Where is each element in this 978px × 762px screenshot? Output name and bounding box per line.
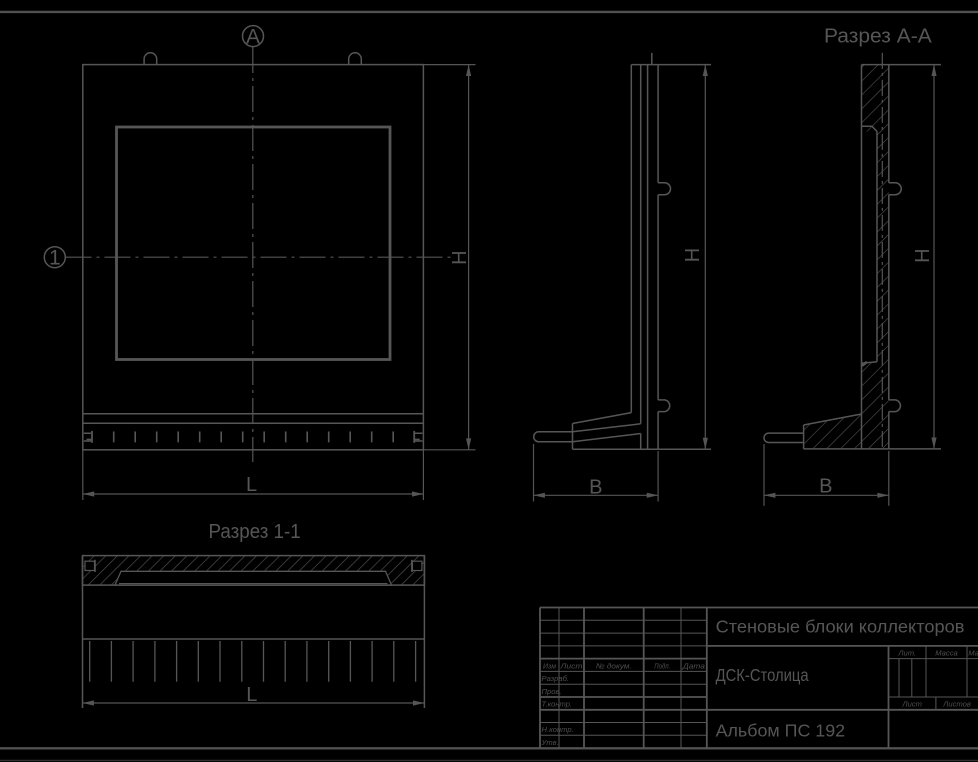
svg-text:Лист: Лист bbox=[559, 661, 582, 670]
svg-text:Разрез А-А: Разрез А-А bbox=[824, 25, 932, 47]
svg-text:Лит.: Лит. bbox=[897, 649, 916, 658]
svg-text:H: H bbox=[912, 248, 934, 262]
svg-text:Разрез 1-1: Разрез 1-1 bbox=[209, 521, 301, 543]
svg-text:А: А bbox=[246, 26, 260, 49]
svg-text:L: L bbox=[246, 684, 257, 706]
svg-text:Лист: Лист bbox=[901, 700, 922, 709]
svg-text:Разраб.: Разраб. bbox=[542, 674, 569, 683]
svg-text:Утв.: Утв. bbox=[541, 738, 559, 747]
svg-text:ДСК-Столица: ДСК-Столица bbox=[716, 665, 809, 685]
svg-text:№ докум.: № докум. bbox=[596, 661, 632, 670]
svg-text:H: H bbox=[682, 248, 704, 262]
svg-text:Стеновые блоки коллекторов: Стеновые блоки коллекторов bbox=[716, 617, 965, 637]
svg-text:Пров.: Пров. bbox=[542, 687, 562, 696]
svg-text:Подп.: Подп. bbox=[654, 661, 670, 670]
svg-text:Т.контр.: Т.контр. bbox=[542, 700, 573, 709]
svg-text:Масштаб: Масштаб bbox=[968, 649, 978, 658]
svg-text:B: B bbox=[589, 476, 602, 498]
svg-text:B: B bbox=[819, 476, 832, 498]
svg-text:H: H bbox=[449, 250, 471, 264]
svg-text:Изм: Изм bbox=[543, 661, 557, 670]
svg-text:L: L bbox=[246, 474, 257, 496]
svg-text:Н.контр.: Н.контр. bbox=[542, 725, 574, 734]
svg-text:1: 1 bbox=[49, 247, 61, 270]
svg-text:Листов: Листов bbox=[942, 700, 971, 709]
svg-text:Дата: Дата bbox=[682, 661, 705, 670]
svg-text:Масса: Масса bbox=[935, 649, 957, 658]
svg-text:Альбом ПС 192: Альбом ПС 192 bbox=[716, 721, 846, 741]
